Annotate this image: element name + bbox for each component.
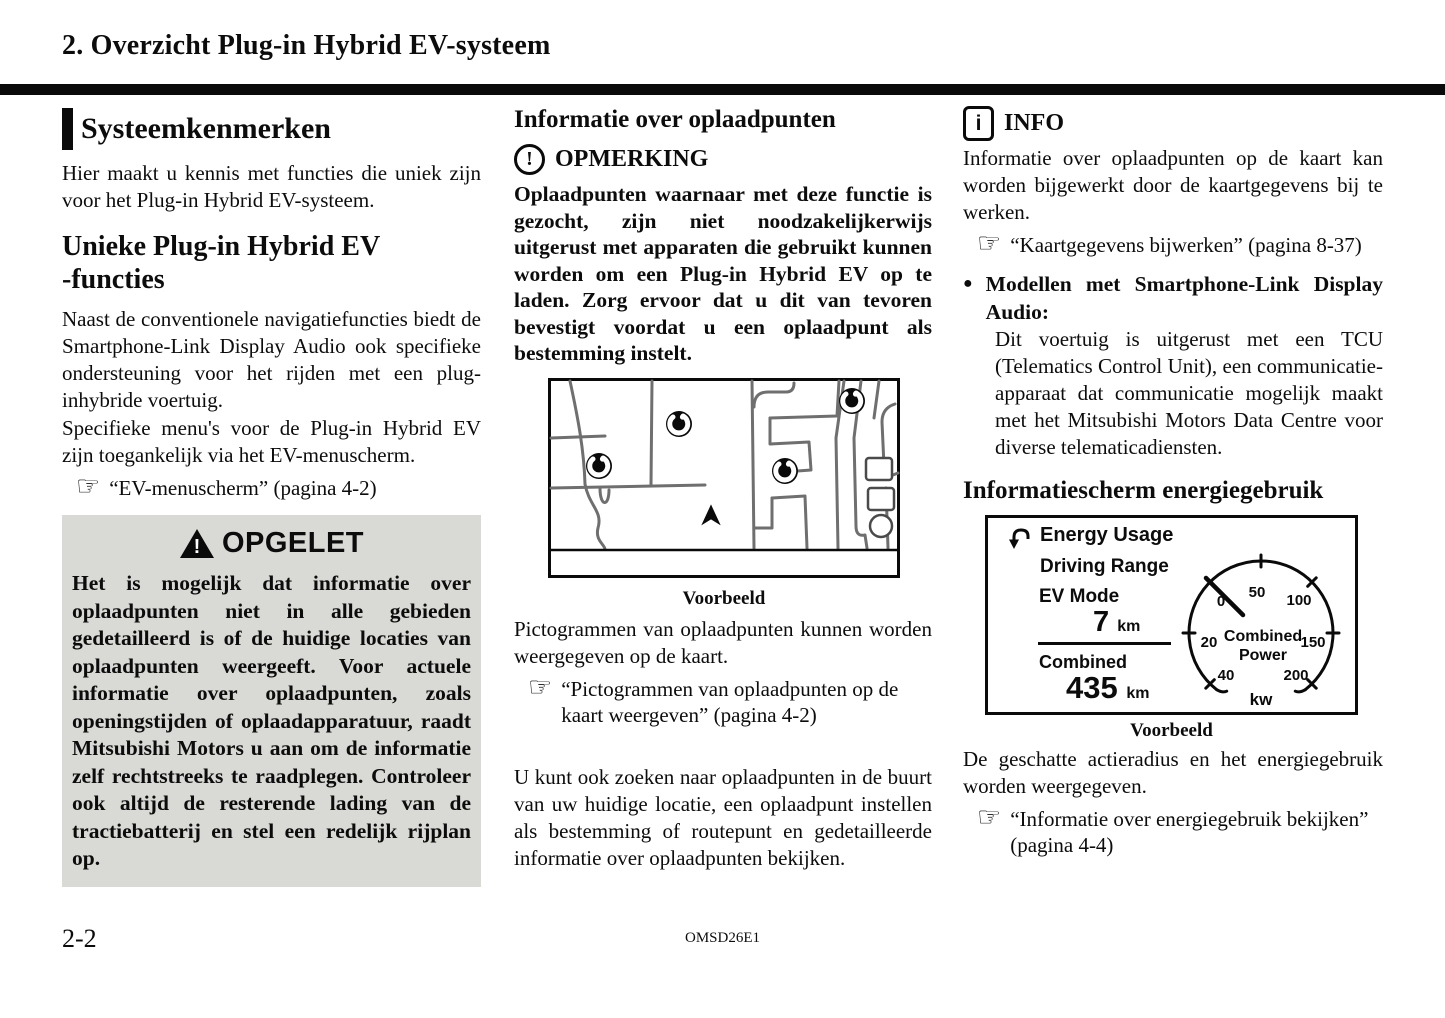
section-title-row: Systeemkenmerken — [62, 106, 481, 152]
reference-item: ☞ “EV-menuscherm” (pagina 4-2) — [76, 475, 481, 501]
manual-page: 2. Overzicht Plug-in Hybrid EV-systeem S… — [0, 0, 1445, 1018]
charging-station-icon — [839, 388, 865, 414]
reference-item: ☞ “Informatie over energiegebruik bekijk… — [977, 806, 1383, 858]
return-arrow-icon — [1008, 524, 1034, 550]
bullet-icon: ● — [963, 270, 973, 326]
pointing-hand-icon: ☞ — [528, 676, 552, 700]
reference-item: ☞ “Pictogrammen van oplaadpunten op de k… — [528, 676, 932, 728]
charging-station-icon — [586, 453, 612, 479]
gauge-tick-label: 40 — [1218, 667, 1235, 684]
screen-row-ev-mode: EV Mode — [1039, 586, 1119, 608]
caution-box: ! OPGELET Het is mogelijk dat informatie… — [62, 515, 481, 887]
screen-title: Energy Usage — [1040, 524, 1173, 547]
section-title: Systeemkenmerken — [81, 112, 331, 146]
caution-title-row: ! OPGELET — [72, 527, 471, 560]
combined-distance: 435 — [1066, 670, 1118, 705]
paragraph: De geschatte actieradius en het energieg… — [963, 746, 1383, 800]
intro-paragraph: Hier maakt u kennis met functies die uni… — [62, 160, 481, 214]
middle-column: Informatie over oplaadpunten ! OPMERKING… — [514, 106, 932, 872]
gauge-tick-label: 150 — [1300, 634, 1325, 651]
ev-mode-distance: 7 — [1093, 606, 1109, 638]
pointing-hand-icon: ☞ — [977, 806, 1001, 830]
paragraph: U kunt ook zoeken naar oplaadpunten in d… — [514, 764, 932, 872]
warning-triangle-icon: ! — [179, 528, 215, 559]
note-title-row: ! OPMERKING — [514, 144, 932, 175]
map-buildings — [866, 458, 894, 537]
gauge-ticks — [1183, 555, 1339, 688]
caution-title: OPGELET — [222, 527, 364, 560]
gauge-tick-label: 200 — [1283, 667, 1308, 684]
ev-mode-value: 7 km — [1093, 606, 1140, 639]
ev-mode-unit: km — [1117, 618, 1140, 635]
charging-station-icon — [772, 458, 798, 484]
bullet-item: ● Modellen met Smartphone-Link Display A… — [963, 270, 1383, 326]
page-header-title: 2. Overzicht Plug-in Hybrid EV-systeem — [62, 30, 550, 62]
screen-row-driving-range: Driving Range — [1040, 556, 1169, 578]
energy-usage-screen: Energy Usage Driving Range EV Mode 7 km … — [985, 515, 1358, 715]
reference-text: “Informatie over energiegebruik bekijken… — [1010, 806, 1383, 858]
reference-text: “Pictogrammen van oplaadpunten op de kaa… — [561, 676, 932, 728]
combined-value: 435 km — [1066, 670, 1149, 706]
paragraph: Pictogrammen van oplaadpunten kunnen wor… — [514, 616, 932, 670]
map-figure: Voorbeeld — [548, 378, 900, 610]
pointing-hand-icon: ☞ — [76, 475, 100, 499]
reference-item: ☞ “Kaartgegevens bijwerken” (pagina 8-37… — [977, 232, 1383, 258]
combined-power-gauge: 0 50 100 150 200 20 40 Combined Power kw — [1168, 524, 1353, 712]
bullet-title: Modellen met Smartphone-Link Display Aud… — [986, 270, 1383, 326]
paragraph: Specifieke menu's voor de Plug-in Hybrid… — [62, 415, 481, 469]
header-rule — [0, 84, 1445, 95]
caution-body: Het is mogelijk dat informatie over opla… — [72, 570, 471, 873]
warning-exclamation: ! — [194, 536, 201, 558]
gauge-tick-label: 50 — [1249, 584, 1266, 601]
paragraph: Naast de conventionele navigatiefuncties… — [62, 306, 481, 414]
right-column: i INFO Informatie over oplaadpunten op d… — [963, 106, 1383, 858]
info-icon: i — [963, 106, 994, 141]
map-example-image — [548, 378, 900, 578]
charging-section-title: Informatie over oplaadpunten — [514, 106, 932, 134]
figure-caption: Voorbeeld — [548, 588, 900, 610]
sub-title-line2: -functies — [62, 263, 481, 296]
pointing-hand-icon: ☞ — [977, 232, 1001, 256]
combined-unit: km — [1126, 685, 1149, 702]
charging-station-icon — [666, 411, 692, 437]
energy-screen-figure: Energy Usage Driving Range EV Mode 7 km … — [985, 515, 1358, 742]
figure-caption: Voorbeeld — [985, 720, 1358, 742]
sub-section-title: Unieke Plug-in Hybrid EV -functies — [62, 230, 481, 296]
energy-section-title: Informatiescherm energiegebruik — [963, 477, 1383, 505]
gauge-tick-label: 20 — [1201, 634, 1218, 651]
gauge-unit-label: kw — [1250, 690, 1273, 709]
screen-divider — [1038, 642, 1171, 645]
reference-text: “EV-menuscherm” (pagina 4-2) — [109, 475, 376, 501]
gauge-tick-label: 0 — [1217, 593, 1225, 610]
section-title-bar — [62, 108, 73, 150]
footer-doc-code: OMSD26E1 — [0, 930, 1445, 947]
gauge-tick-label: 100 — [1286, 592, 1311, 609]
gauge-center-line2: Power — [1239, 647, 1287, 664]
note-body: Oplaadpunten waarnaar met deze functie i… — [514, 181, 932, 367]
note-title: OPMERKING — [555, 146, 708, 173]
info-title: INFO — [1004, 110, 1064, 137]
bullet-body: Dit voertuig is uitgerust met een TCU (T… — [995, 326, 1383, 461]
info-body: Informatie over oplaadpunten op de kaart… — [963, 145, 1383, 226]
info-title-row: i INFO — [963, 106, 1383, 141]
sub-title-line1: Unieke Plug-in Hybrid EV — [62, 230, 481, 263]
gauge-center-label: Combined Power — [1224, 628, 1302, 664]
note-exclamation-icon: ! — [514, 144, 545, 175]
gauge-center-line1: Combined — [1224, 628, 1302, 645]
left-column: Systeemkenmerken Hier maakt u kennis met… — [62, 106, 481, 887]
reference-text: “Kaartgegevens bijwerken” (pagina 8-37) — [1010, 232, 1362, 258]
